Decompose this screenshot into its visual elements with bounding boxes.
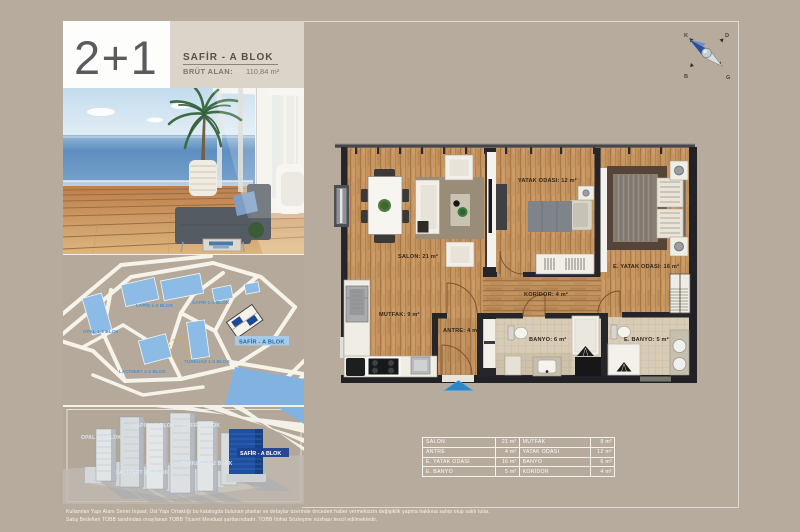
svg-text:LAPİS 1-2 BLOK: LAPİS 1-2 BLOK [136,302,174,308]
svg-text:SAFİR - A BLOK: SAFİR - A BLOK [240,450,281,457]
svg-text:LACİVERT 1-2 BLOK: LACİVERT 1-2 BLOK [116,469,169,476]
svg-text:OPAL 1-2 BLOK: OPAL 1-2 BLOK [83,329,119,334]
svg-text:E. YATAK ODASI: 16 m²: E. YATAK ODASI: 16 m² [613,263,679,270]
svg-text:SAFİR 1 BLOK: SAFİR 1 BLOK [183,422,220,429]
svg-text:G: G [726,75,730,81]
svg-text:D: D [725,33,729,39]
svg-text:ANTRE: 4 m²: ANTRE: 4 m² [443,327,479,334]
svg-text:LAPİS 1-2 BLOK: LAPİS 1-2 BLOK [133,422,175,429]
svg-text:SAFİR - A BLOK: SAFİR - A BLOK [239,339,285,346]
svg-text:BANYO: 6 m²: BANYO: 6 m² [529,336,566,343]
svg-text:TURKUAZ 1-2 BLOK: TURKUAZ 1-2 BLOK [184,359,231,364]
svg-text:E. BANYO: 5 m²: E. BANYO: 5 m² [624,336,669,343]
svg-text:K: K [684,33,688,39]
svg-text:MUTFAK: 9 m²: MUTFAK: 9 m² [379,311,420,318]
svg-text:B: B [684,74,688,80]
svg-text:SAFİR 1-2 BLOK: SAFİR 1-2 BLOK [192,299,230,305]
svg-text:KORİDOR: 4 m²: KORİDOR: 4 m² [524,291,568,298]
svg-text:OPAL 1-2 BLOK: OPAL 1-2 BLOK [81,435,121,441]
svg-text:YATAK ODASI: 12 m²: YATAK ODASI: 12 m² [518,177,577,184]
svg-text:LACİVERT 1-2 BLOK: LACİVERT 1-2 BLOK [119,368,166,374]
svg-text:TURKUAZ 1-2 BLOK: TURKUAZ 1-2 BLOK [181,461,233,467]
svg-text:SALON: 21 m²: SALON: 21 m² [398,253,438,260]
